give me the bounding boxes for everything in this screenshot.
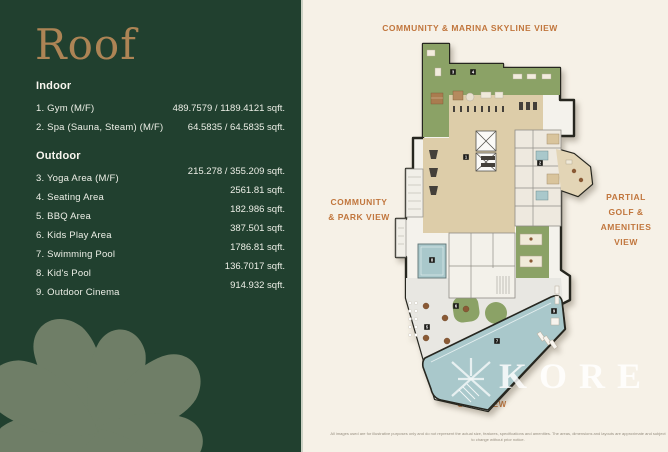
item-label: 7. Swimming Pool: [36, 249, 115, 260]
item-area: 136.7017 sqft.: [225, 261, 285, 272]
item-area: 914.932 sqft.: [230, 280, 285, 291]
amenities-panel: Roof Indoor 1. Gym (M/F) 489.7579 / 1189…: [0, 0, 303, 452]
item-label: 3. Yoga Area (M/F): [36, 173, 119, 184]
brochure-page: Roof Indoor 1. Gym (M/F) 489.7579 / 1189…: [0, 0, 668, 452]
list-item: 8. Kid's Pool 136.7017 sqft.: [36, 268, 285, 279]
item-label: 5. BBQ Area: [36, 211, 91, 222]
item-area: 64.5835 / 64.5835 sqft.: [188, 122, 285, 133]
section-heading-outdoor: Outdoor: [36, 150, 285, 162]
item-label: 1. Gym (M/F): [36, 103, 94, 114]
marker-1: 1: [463, 154, 469, 160]
item-area: 2561.81 sqft.: [230, 185, 285, 196]
item-label: 4. Seating Area: [36, 192, 104, 203]
kore-logo-icon: [446, 356, 496, 402]
item-label: 6. Kids Play Area: [36, 230, 112, 241]
list-item: 1. Gym (M/F) 489.7579 / 1189.4121 sqft.: [36, 103, 285, 114]
item-label: 8. Kid's Pool: [36, 268, 91, 279]
disclaimer-text: All images used are for illustrative pur…: [330, 431, 666, 443]
indoor-items: 1. Gym (M/F) 489.7579 / 1189.4121 sqft. …: [36, 103, 285, 133]
item-area: 387.501 sqft.: [230, 223, 285, 234]
page-title: Roof: [35, 20, 137, 69]
marker-2: 2: [537, 160, 543, 166]
list-item: 5. BBQ Area 182.986 sqft.: [36, 211, 285, 222]
marker-8: 8: [429, 257, 435, 263]
kore-watermark: KORE: [499, 355, 653, 397]
item-area: 1786.81 sqft.: [230, 242, 285, 253]
flower-motif-icon: [0, 295, 232, 452]
list-item: 2. Spa (Sauna, Steam) (M/F) 64.5835 / 64…: [36, 122, 285, 133]
list-item: 4. Seating Area 2561.81 sqft.: [36, 192, 285, 203]
item-area: 215.278 / 355.209 sqft.: [188, 166, 285, 177]
list-item: 7. Swimming Pool 1786.81 sqft.: [36, 249, 285, 260]
marker-7: 7: [494, 338, 500, 344]
amenities-list: Indoor 1. Gym (M/F) 489.7579 / 1189.4121…: [36, 80, 285, 306]
view-label-top: COMMUNITY & MARINA SKYLINE VIEW: [341, 21, 599, 36]
marker-5: 5: [424, 324, 430, 330]
outdoor-items: 3. Yoga Area (M/F) 215.278 / 355.209 sqf…: [36, 173, 285, 298]
list-item: 6. Kids Play Area 387.501 sqft.: [36, 230, 285, 241]
marker-3: 3: [450, 69, 456, 75]
item-area: 489.7579 / 1189.4121 sqft.: [173, 103, 285, 114]
marker-4: 4: [470, 69, 476, 75]
section-heading-indoor: Indoor: [36, 80, 285, 92]
item-area: 182.986 sqft.: [230, 204, 285, 215]
item-label: 2. Spa (Sauna, Steam) (M/F): [36, 122, 163, 133]
core-rooms: [449, 233, 515, 298]
spa-rooms: [515, 130, 561, 226]
marker-6: 6: [453, 303, 459, 309]
list-item: 3. Yoga Area (M/F) 215.278 / 355.209 sqf…: [36, 173, 285, 184]
marker-9: 9: [551, 308, 557, 314]
